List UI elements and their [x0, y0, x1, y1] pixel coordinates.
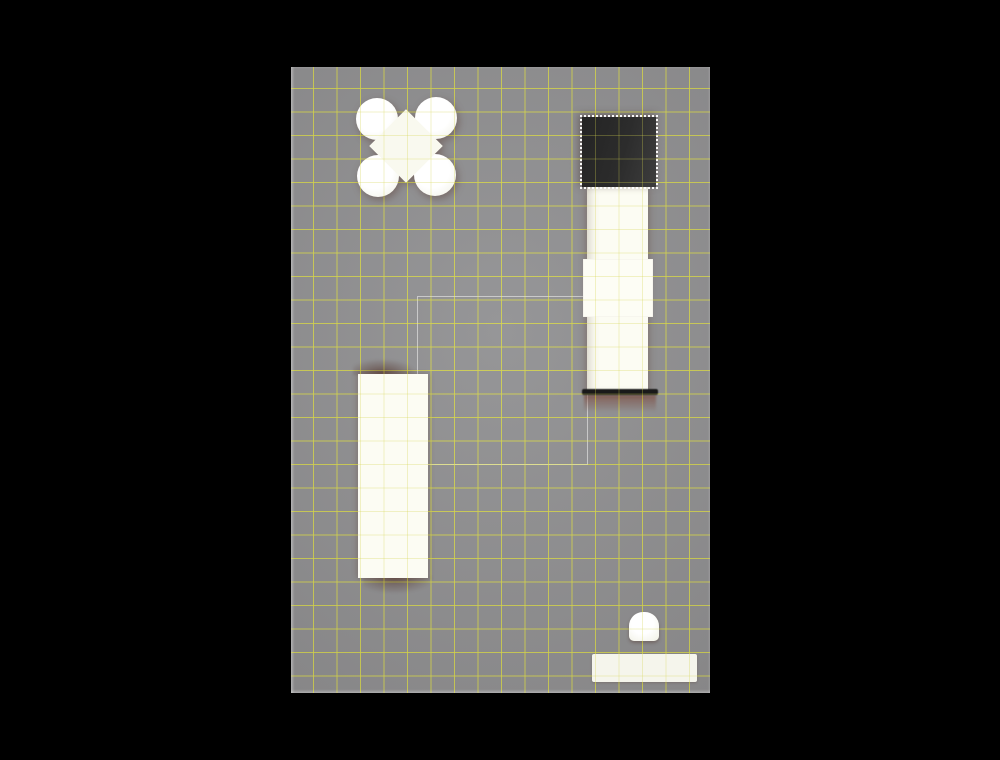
- contact-shadow: [363, 576, 433, 593]
- room-outline: [417, 296, 588, 465]
- dark-cube-object[interactable]: [582, 117, 656, 187]
- contact-shadow: [584, 395, 656, 412]
- column-collar-object[interactable]: [583, 259, 653, 317]
- floor-plane[interactable]: [291, 67, 710, 693]
- low-bar-object[interactable]: [592, 654, 697, 682]
- stool-object[interactable]: [629, 612, 659, 641]
- scene-viewport[interactable]: [0, 0, 1000, 760]
- selection-marquee: [580, 115, 658, 189]
- sphere-cluster-object[interactable]: [356, 96, 457, 197]
- contact-shadow: [353, 359, 417, 375]
- column-base-edge: [582, 389, 658, 395]
- tall-column-left-object[interactable]: [358, 374, 428, 578]
